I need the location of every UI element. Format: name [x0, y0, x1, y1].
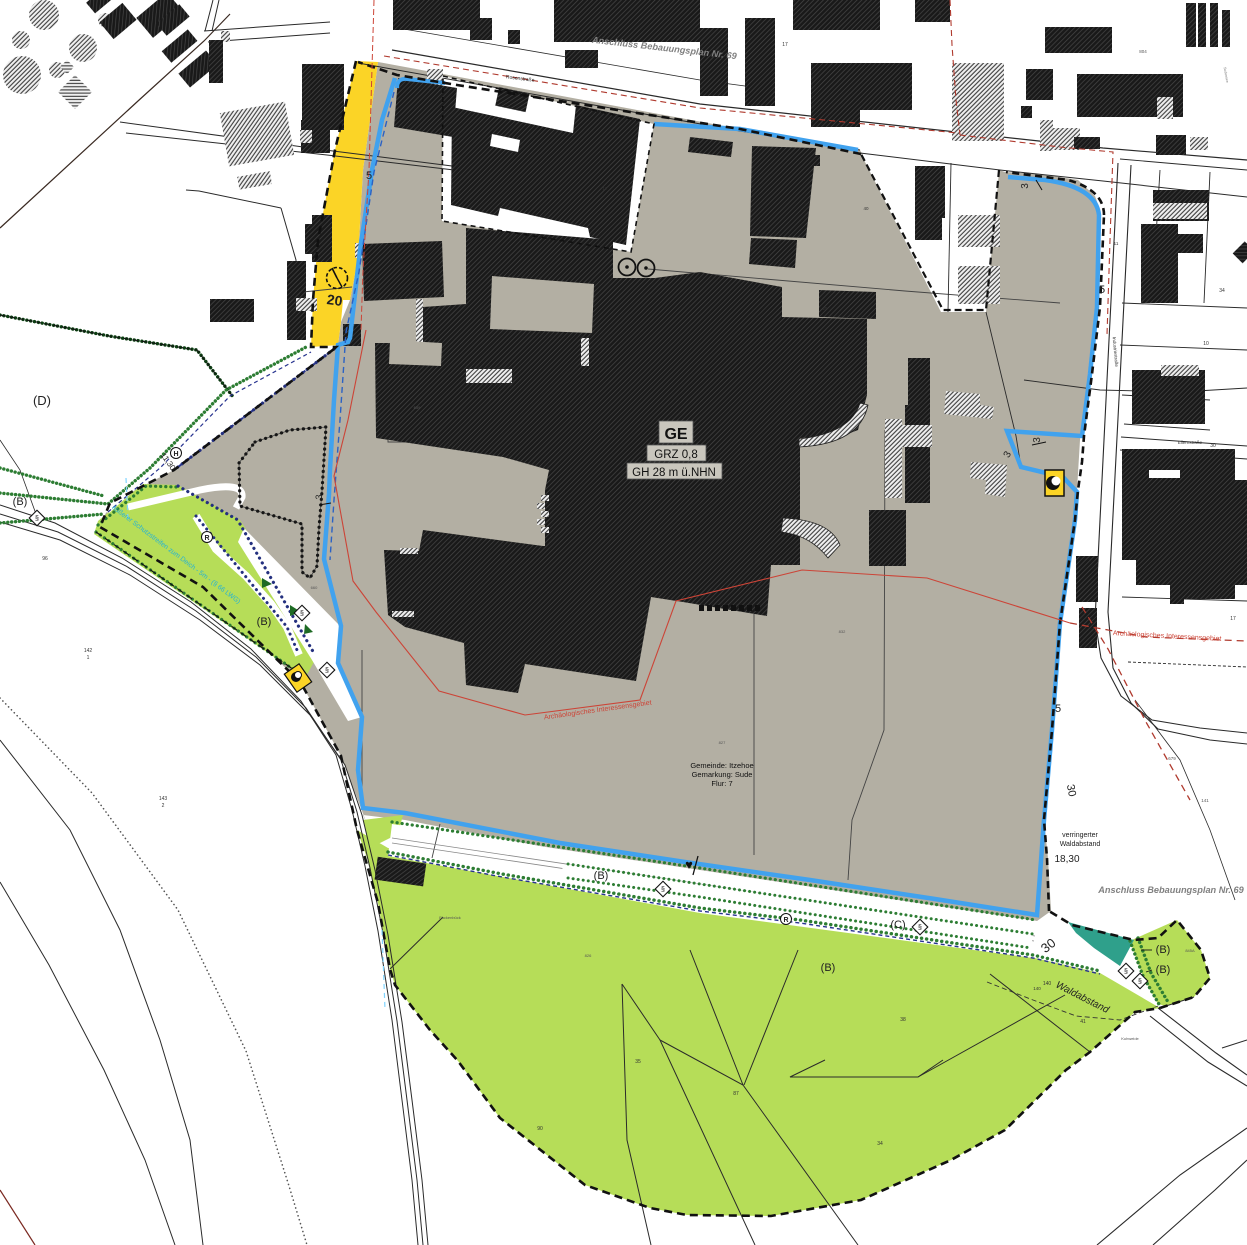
- svg-text:660: 660: [311, 585, 318, 590]
- svg-text:17: 17: [782, 42, 788, 48]
- svg-text:§: §: [1124, 969, 1128, 976]
- svg-text:679: 679: [1168, 756, 1176, 761]
- svg-text:§: §: [661, 887, 665, 894]
- svg-text:H: H: [173, 451, 178, 458]
- svg-text:Gemarkung: Sude: Gemarkung: Sude: [692, 770, 753, 779]
- svg-text:41: 41: [1080, 1019, 1086, 1025]
- svg-text:35: 35: [635, 1059, 641, 1065]
- svg-text:§: §: [35, 516, 39, 523]
- svg-text:34: 34: [877, 1141, 883, 1147]
- svg-text:90: 90: [537, 1126, 543, 1132]
- svg-text:§: §: [300, 611, 304, 618]
- svg-text:40: 40: [863, 206, 869, 211]
- svg-text:(B): (B): [1156, 964, 1171, 976]
- svg-text:Gemeinde: Itzehoe: Gemeinde: Itzehoe: [690, 761, 753, 770]
- svg-text:(B): (B): [821, 962, 836, 974]
- svg-text:(D): (D): [33, 393, 51, 408]
- svg-text:§: §: [918, 925, 922, 932]
- svg-text:Waldabstand: Waldabstand: [1060, 841, 1101, 848]
- svg-text:§: §: [1138, 979, 1142, 986]
- svg-text:17: 17: [1230, 616, 1236, 622]
- svg-text:142: 142: [84, 648, 93, 654]
- svg-text:R: R: [204, 535, 209, 542]
- svg-text:34: 34: [1219, 288, 1225, 294]
- svg-text:141: 141: [1201, 798, 1209, 803]
- svg-text:Flur: 7: Flur: 7: [711, 779, 732, 788]
- svg-text:38: 38: [900, 1017, 906, 1023]
- svg-text:845A: 845A: [1185, 948, 1195, 953]
- svg-text:30: 30: [1210, 443, 1216, 449]
- svg-text:9: 9: [939, 11, 942, 17]
- svg-text:GH 28 m ü.NHN: GH 28 m ü.NHN: [632, 467, 716, 479]
- svg-text:GRZ 0,8: GRZ 0,8: [654, 449, 697, 461]
- svg-text:18,30: 18,30: [1054, 854, 1079, 865]
- svg-text:5: 5: [1099, 284, 1105, 296]
- svg-text:Anschluss Bebauungsplan Nr. 69: Anschluss Bebauungsplan Nr. 69: [1097, 885, 1244, 895]
- svg-text:3: 3: [1020, 183, 1031, 189]
- svg-text:87: 87: [733, 1091, 739, 1097]
- svg-text:Fackenbück: Fackenbück: [439, 915, 461, 920]
- svg-text:5: 5: [1055, 703, 1061, 715]
- svg-text:R: R: [783, 917, 788, 924]
- svg-text:5: 5: [366, 170, 372, 182]
- svg-text:30: 30: [1064, 783, 1078, 797]
- svg-text:17: 17: [602, 186, 608, 191]
- svg-text:2: 2: [162, 803, 165, 809]
- svg-text:(B): (B): [13, 496, 28, 508]
- svg-text:3: 3: [1032, 437, 1043, 443]
- svg-text:(B): (B): [257, 616, 272, 628]
- svg-text:96: 96: [42, 556, 48, 562]
- svg-text:20: 20: [326, 291, 344, 309]
- svg-text:143: 143: [159, 796, 168, 802]
- svg-text:827: 827: [719, 740, 726, 745]
- svg-text:Kuhweide: Kuhweide: [1121, 1036, 1139, 1041]
- svg-text:826: 826: [585, 953, 592, 958]
- svg-text:♥: ♥: [685, 857, 693, 872]
- svg-text:Ellernstraße: Ellernstraße: [1178, 440, 1203, 445]
- svg-text:140: 140: [1033, 986, 1041, 991]
- svg-text:(C): (C): [890, 919, 905, 931]
- svg-text:3: 3: [314, 494, 324, 499]
- svg-text:§: §: [325, 668, 329, 675]
- svg-text:1: 1: [87, 655, 90, 661]
- svg-text:10: 10: [1203, 341, 1209, 347]
- svg-text:140: 140: [1043, 981, 1052, 987]
- svg-text:verringerter: verringerter: [1062, 832, 1098, 839]
- svg-text:832: 832: [839, 629, 846, 634]
- svg-text:659: 659: [414, 405, 421, 410]
- svg-text:25: 25: [822, 306, 828, 311]
- svg-text:11: 11: [1114, 241, 1119, 246]
- svg-text:GE: GE: [664, 426, 687, 443]
- svg-text:(B): (B): [1156, 944, 1171, 956]
- svg-text:804: 804: [1139, 49, 1147, 54]
- svg-text:(B): (B): [594, 870, 609, 882]
